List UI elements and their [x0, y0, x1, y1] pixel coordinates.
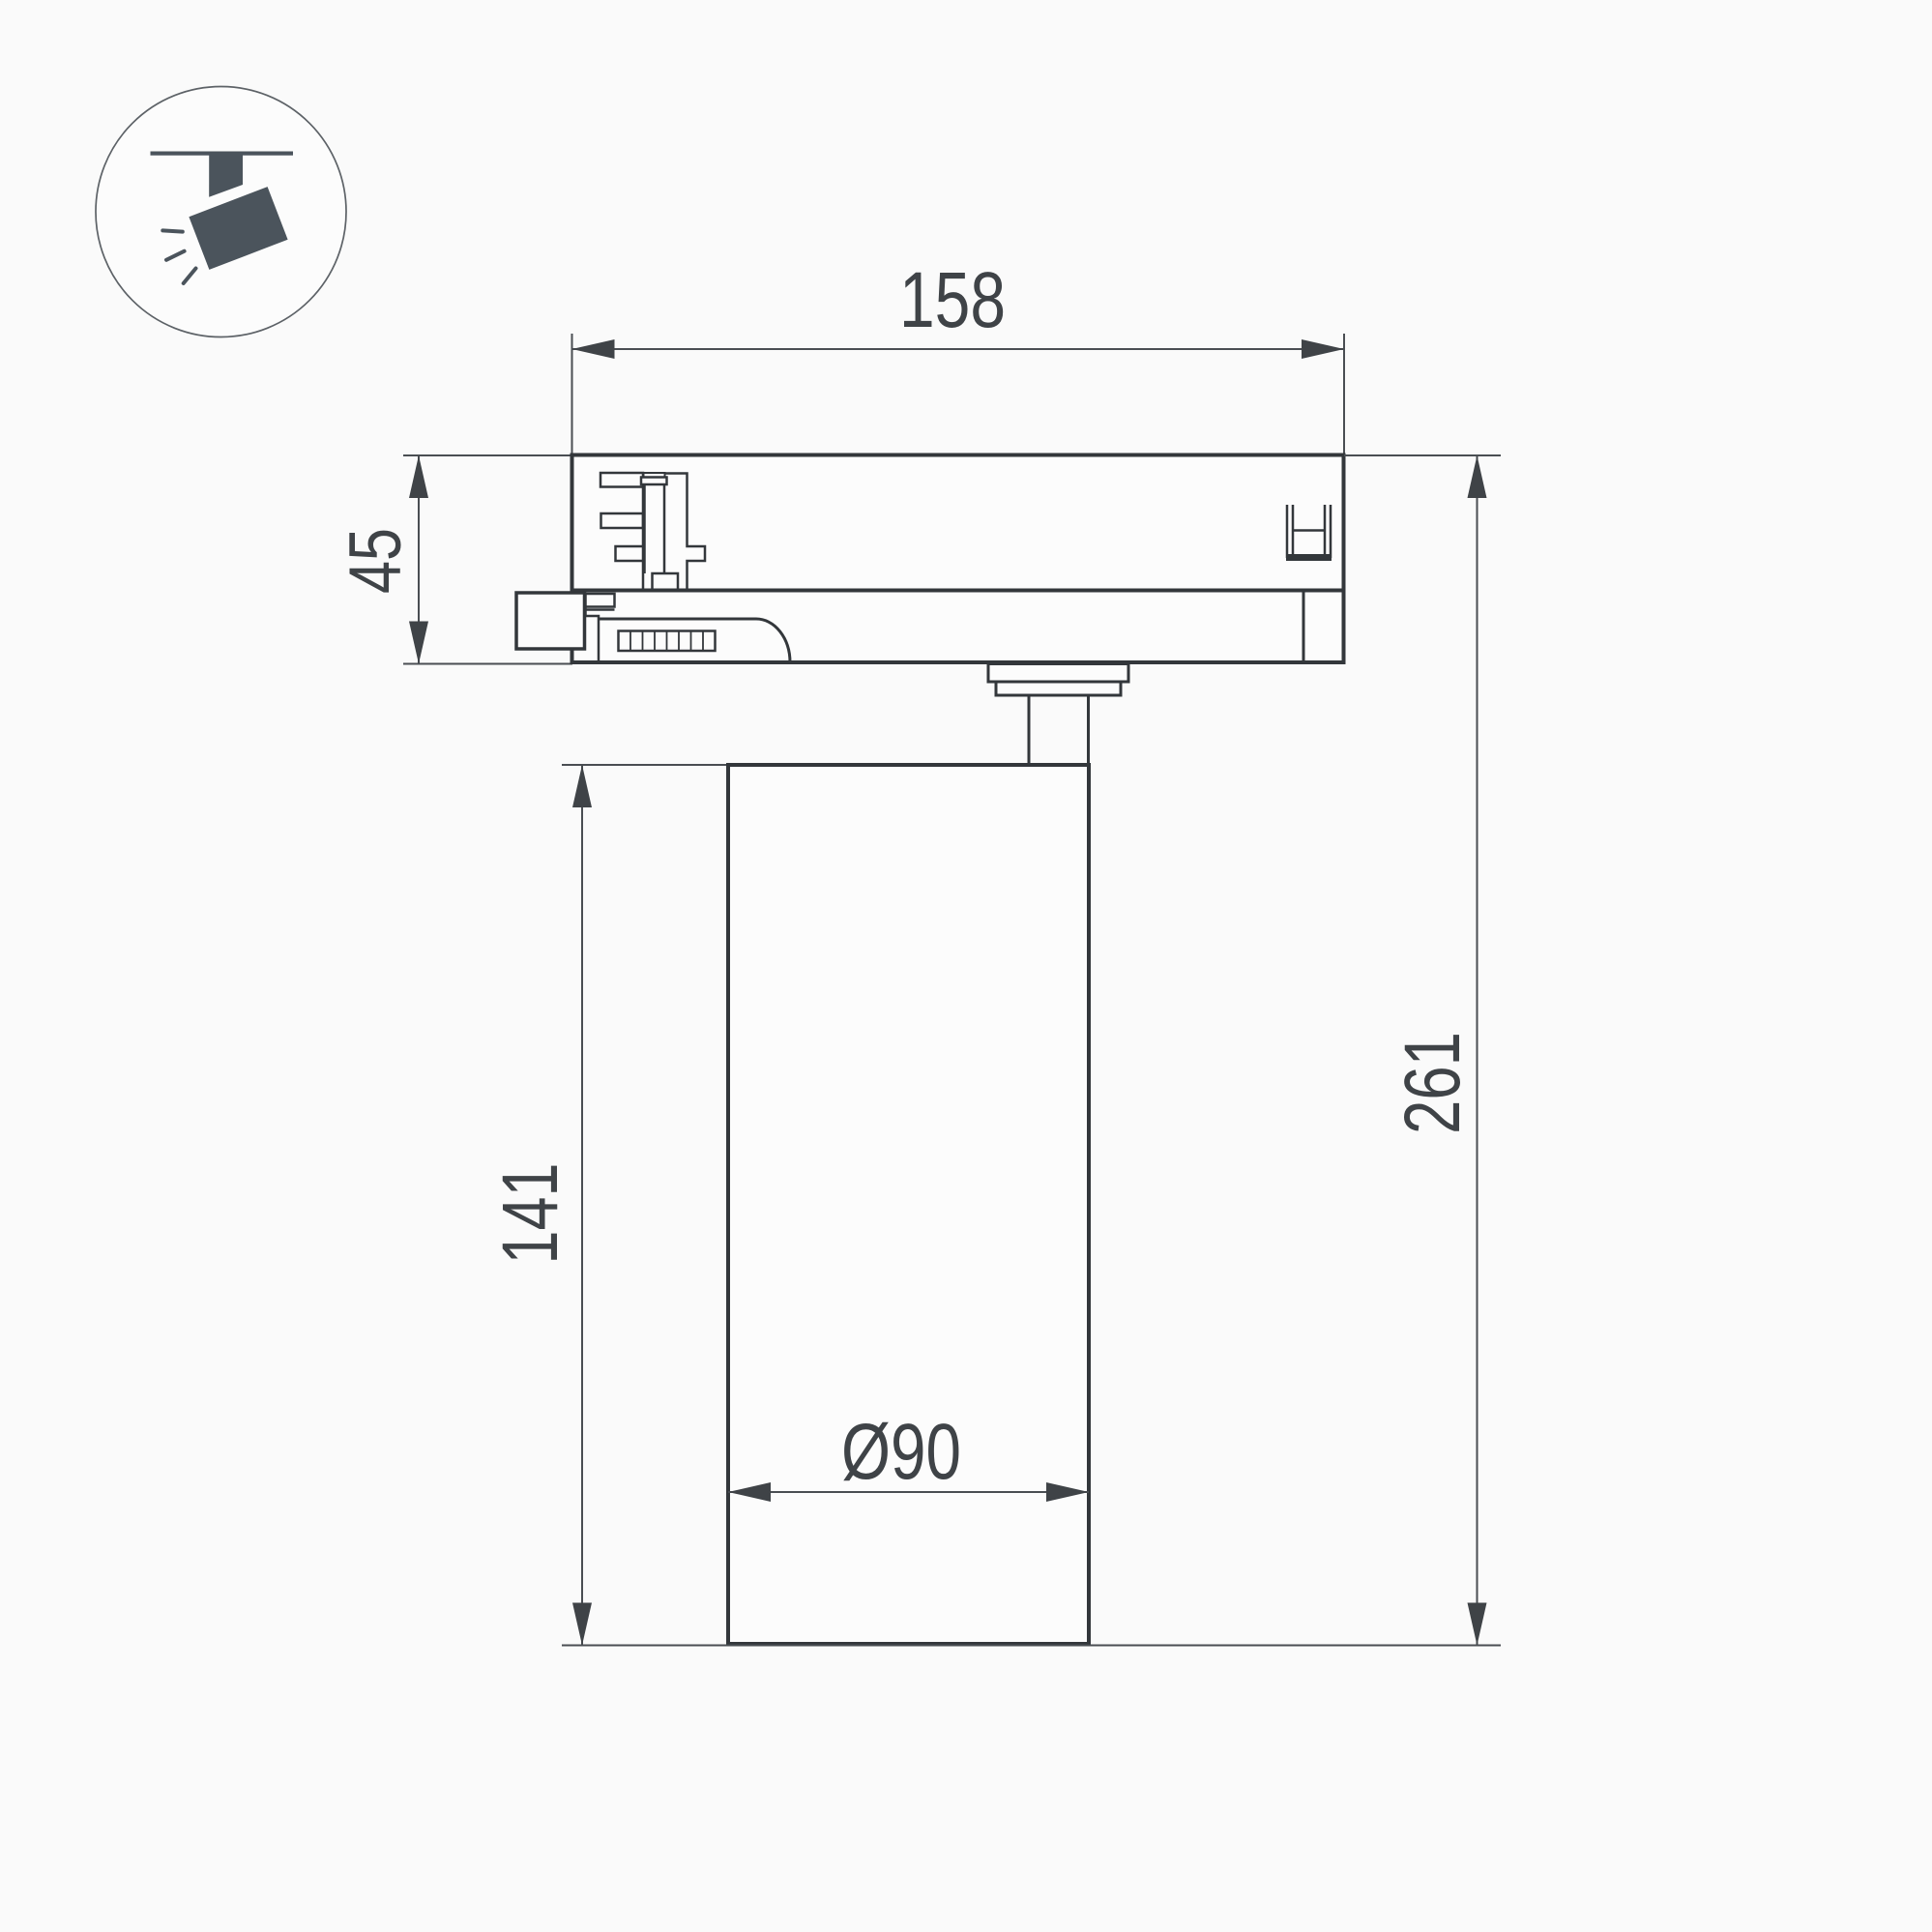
svg-text:158: 158 [899, 256, 1006, 344]
svg-text:45: 45 [335, 528, 417, 594]
svg-text:Ø90: Ø90 [841, 1408, 961, 1496]
svg-text:261: 261 [1389, 1032, 1477, 1134]
svg-text:141: 141 [486, 1163, 574, 1265]
